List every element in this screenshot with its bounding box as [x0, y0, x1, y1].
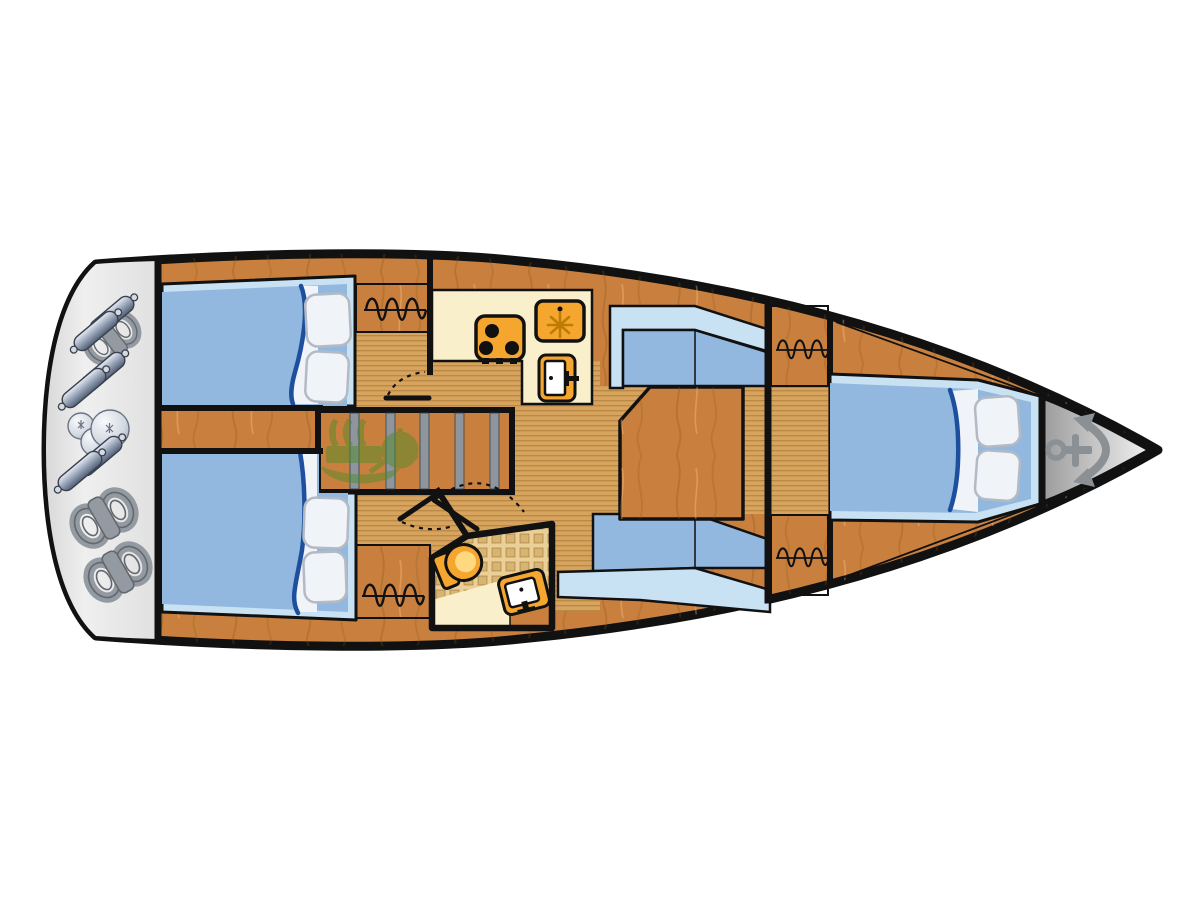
- fridge-icon: [536, 301, 584, 341]
- boat-floor-plan-canvas: [0, 0, 1200, 900]
- pillow-icon: [303, 551, 347, 602]
- stove-icon: [476, 316, 524, 364]
- pillow-icon: [974, 450, 1020, 502]
- pillow-icon: [974, 396, 1020, 448]
- aft-cabin-port-bed: [162, 276, 355, 406]
- oven-icon: [539, 355, 579, 401]
- salon-table: [620, 387, 743, 519]
- forward-corridor-floor: [771, 388, 828, 515]
- boat-floor-plan: [0, 0, 1200, 900]
- pillow-icon: [305, 351, 350, 403]
- pillow-icon: [305, 293, 352, 347]
- pillow-icon: [303, 497, 349, 549]
